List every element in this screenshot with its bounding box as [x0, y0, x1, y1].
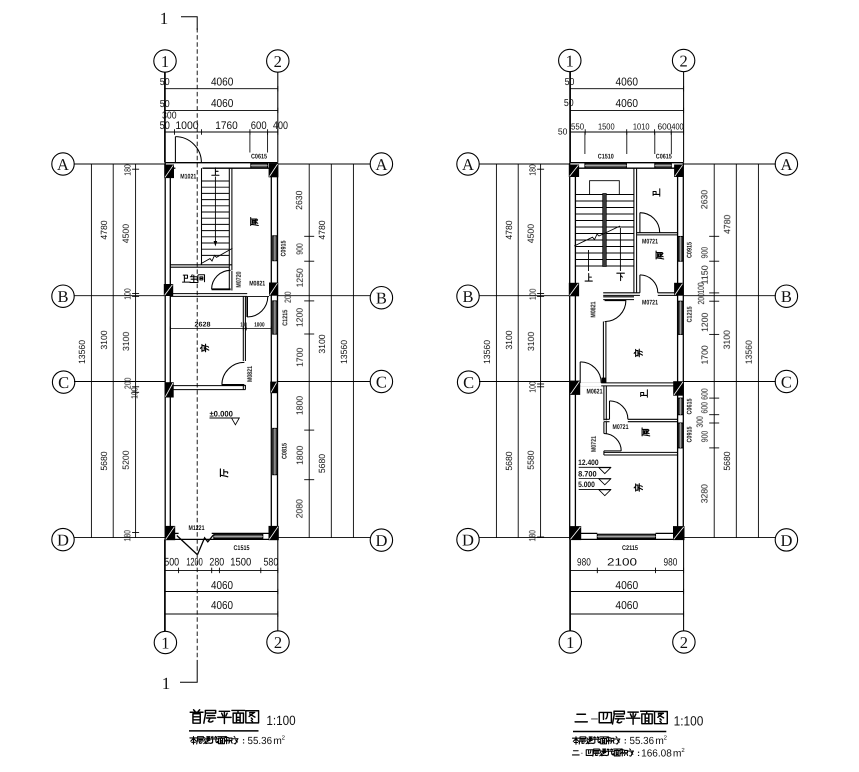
svg-text:500: 500: [164, 556, 179, 568]
svg-text:5200: 5200: [121, 450, 131, 469]
svg-text:1500: 1500: [230, 556, 251, 568]
svg-text:5680: 5680: [99, 451, 109, 470]
svg-text:4780: 4780: [504, 220, 514, 239]
svg-text:4500: 4500: [526, 224, 536, 243]
svg-text:B: B: [376, 289, 387, 308]
svg-text:13560: 13560: [77, 340, 87, 364]
svg-text:C0915: C0915: [687, 426, 694, 442]
svg-text:100: 100: [240, 321, 247, 328]
svg-text:400: 400: [273, 120, 288, 132]
svg-text:200: 200: [283, 292, 293, 303]
svg-text:2630: 2630: [699, 190, 709, 209]
svg-text:900: 900: [295, 243, 305, 254]
svg-text:5580: 5580: [526, 450, 536, 469]
svg-text:550: 550: [571, 121, 584, 131]
svg-text:1: 1: [161, 52, 169, 71]
svg-text::: :: [624, 736, 627, 746]
svg-text:C0815: C0815: [282, 443, 289, 459]
svg-text:1250: 1250: [295, 268, 305, 287]
svg-text:600: 600: [700, 402, 710, 413]
svg-text:3280: 3280: [700, 484, 710, 503]
svg-text:2630: 2630: [294, 191, 304, 210]
svg-text:1: 1: [566, 51, 574, 70]
svg-text:M1021: M1021: [180, 173, 196, 180]
svg-text:M0821: M0821: [249, 281, 265, 288]
svg-text:–: –: [591, 711, 598, 725]
svg-text:180: 180: [528, 164, 538, 175]
svg-text:1000: 1000: [175, 120, 198, 132]
svg-text:C0615: C0615: [656, 154, 672, 161]
svg-text:C1515: C1515: [234, 545, 250, 552]
svg-text:180: 180: [528, 530, 538, 541]
svg-text:1200: 1200: [186, 556, 203, 568]
svg-text:C1215: C1215: [687, 306, 694, 322]
svg-text:C1510: C1510: [598, 154, 614, 161]
svg-text:M0821: M0821: [247, 366, 254, 382]
svg-text:C0615: C0615: [251, 154, 267, 161]
svg-text:12.400: 12.400: [578, 458, 599, 467]
svg-text:C: C: [58, 373, 69, 392]
svg-text:2080: 2080: [295, 499, 305, 518]
svg-text::: :: [242, 735, 245, 745]
svg-text:1:100: 1:100: [674, 713, 704, 728]
svg-text:980: 980: [664, 556, 678, 568]
svg-text:900: 900: [700, 431, 710, 442]
svg-text:900: 900: [700, 247, 710, 258]
svg-text:2: 2: [679, 51, 687, 70]
svg-text:m: m: [273, 736, 282, 747]
svg-text:3100: 3100: [317, 334, 327, 353]
svg-text:C0615: C0615: [687, 398, 694, 414]
svg-text:1010: 1010: [633, 121, 650, 131]
svg-text:5.000: 5.000: [578, 480, 595, 489]
svg-text:4780: 4780: [317, 220, 327, 239]
svg-text:3100: 3100: [722, 330, 732, 349]
svg-text:C2115: C2115: [622, 545, 638, 552]
svg-text:100: 100: [528, 381, 538, 392]
svg-text:300: 300: [695, 416, 705, 427]
svg-text:580: 580: [264, 556, 279, 568]
svg-text:M0821: M0821: [590, 301, 597, 317]
svg-text:A: A: [780, 155, 792, 174]
svg-text:1760: 1760: [215, 120, 237, 132]
svg-text:200: 200: [123, 378, 133, 389]
svg-text:13560: 13560: [744, 340, 754, 364]
svg-text:C: C: [463, 373, 474, 392]
svg-text:100: 100: [123, 288, 133, 299]
svg-text:1200: 1200: [295, 308, 305, 327]
svg-text:1800: 1800: [295, 446, 305, 465]
svg-text:50: 50: [558, 127, 568, 137]
svg-text:M0621: M0621: [587, 389, 603, 396]
svg-text:D: D: [780, 531, 792, 550]
svg-text:4060: 4060: [211, 580, 233, 592]
svg-text:180: 180: [123, 164, 133, 175]
svg-text:1700: 1700: [700, 345, 710, 364]
svg-text::: :: [637, 748, 640, 758]
svg-text:50: 50: [564, 98, 574, 109]
svg-text:4780: 4780: [99, 220, 109, 239]
svg-text:600: 600: [700, 388, 710, 399]
svg-text:4060: 4060: [211, 76, 234, 88]
svg-text:2628: 2628: [195, 321, 211, 328]
svg-text:C: C: [376, 372, 387, 391]
svg-text:980: 980: [577, 556, 591, 568]
svg-text:4500: 4500: [121, 224, 131, 243]
svg-text:A: A: [462, 155, 474, 174]
svg-text:100: 100: [130, 387, 140, 398]
svg-text:55.36: 55.36: [248, 736, 273, 747]
svg-text:5680: 5680: [317, 454, 327, 473]
svg-text:1800: 1800: [295, 396, 305, 415]
svg-text:4060: 4060: [211, 600, 233, 612]
svg-text:50: 50: [565, 77, 575, 88]
svg-text:13560: 13560: [482, 340, 492, 364]
svg-text:m: m: [655, 736, 664, 747]
svg-text:50: 50: [160, 120, 170, 132]
svg-text:A: A: [57, 155, 69, 174]
svg-text:B: B: [781, 287, 792, 306]
svg-text:3100: 3100: [99, 330, 109, 349]
svg-text:600: 600: [657, 121, 671, 131]
svg-text:3100: 3100: [121, 332, 131, 351]
svg-text:1: 1: [162, 674, 171, 693]
svg-text:50: 50: [160, 77, 170, 88]
svg-text:55.36: 55.36: [630, 736, 655, 747]
svg-text:1: 1: [566, 633, 574, 652]
svg-text:4060: 4060: [211, 98, 234, 110]
svg-text:4060: 4060: [615, 580, 638, 592]
svg-text:2: 2: [274, 633, 282, 652]
svg-text:A: A: [375, 155, 387, 174]
svg-text:4060: 4060: [616, 76, 639, 88]
svg-text:5680: 5680: [722, 451, 732, 470]
svg-text:100: 100: [696, 282, 706, 293]
svg-text:4060: 4060: [616, 98, 639, 110]
svg-text:1700: 1700: [295, 348, 305, 367]
svg-text:13560: 13560: [339, 340, 349, 364]
svg-text:3100: 3100: [504, 330, 514, 349]
svg-text:m: m: [673, 748, 682, 759]
svg-text:180: 180: [123, 530, 133, 541]
svg-text:1150: 1150: [700, 265, 710, 284]
svg-text:±0.000: ±0.000: [209, 410, 233, 419]
svg-text:C1215: C1215: [282, 310, 289, 326]
svg-text:4060: 4060: [615, 600, 638, 612]
svg-text:D: D: [375, 531, 387, 550]
svg-text:M0721: M0721: [642, 239, 658, 246]
svg-text:D: D: [57, 531, 69, 550]
svg-text:2100: 2100: [607, 556, 637, 568]
svg-text:50: 50: [160, 99, 170, 110]
svg-text:4780: 4780: [722, 215, 732, 234]
svg-text:M0721: M0721: [642, 299, 658, 306]
svg-text:400: 400: [671, 121, 683, 131]
svg-text:B: B: [57, 287, 68, 306]
svg-text:1200: 1200: [700, 313, 710, 332]
svg-text:200: 200: [696, 293, 706, 304]
svg-text:1: 1: [161, 633, 169, 652]
svg-text:600: 600: [251, 120, 267, 132]
svg-text:B: B: [462, 287, 473, 306]
svg-text:5680: 5680: [504, 451, 514, 470]
svg-text:C0915: C0915: [281, 240, 288, 256]
svg-text:1000: 1000: [254, 321, 265, 328]
svg-text:8.700: 8.700: [578, 469, 597, 478]
svg-text:C: C: [781, 372, 792, 391]
svg-text:M0721: M0721: [613, 424, 629, 431]
svg-text:1: 1: [160, 9, 169, 28]
svg-text:1500: 1500: [598, 121, 615, 131]
svg-text:280: 280: [209, 556, 224, 568]
svg-text:2: 2: [680, 633, 688, 652]
svg-text:166.08: 166.08: [641, 748, 672, 759]
svg-text:1:100: 1:100: [266, 713, 295, 728]
svg-text:M0721: M0721: [591, 436, 598, 452]
svg-text:M1221: M1221: [189, 525, 205, 532]
svg-text:3100: 3100: [526, 332, 536, 351]
svg-text:C0915: C0915: [687, 242, 694, 258]
svg-text:D: D: [462, 531, 474, 550]
svg-text:100: 100: [528, 289, 538, 300]
svg-text:M0720: M0720: [236, 271, 243, 287]
svg-text:2: 2: [274, 52, 282, 71]
